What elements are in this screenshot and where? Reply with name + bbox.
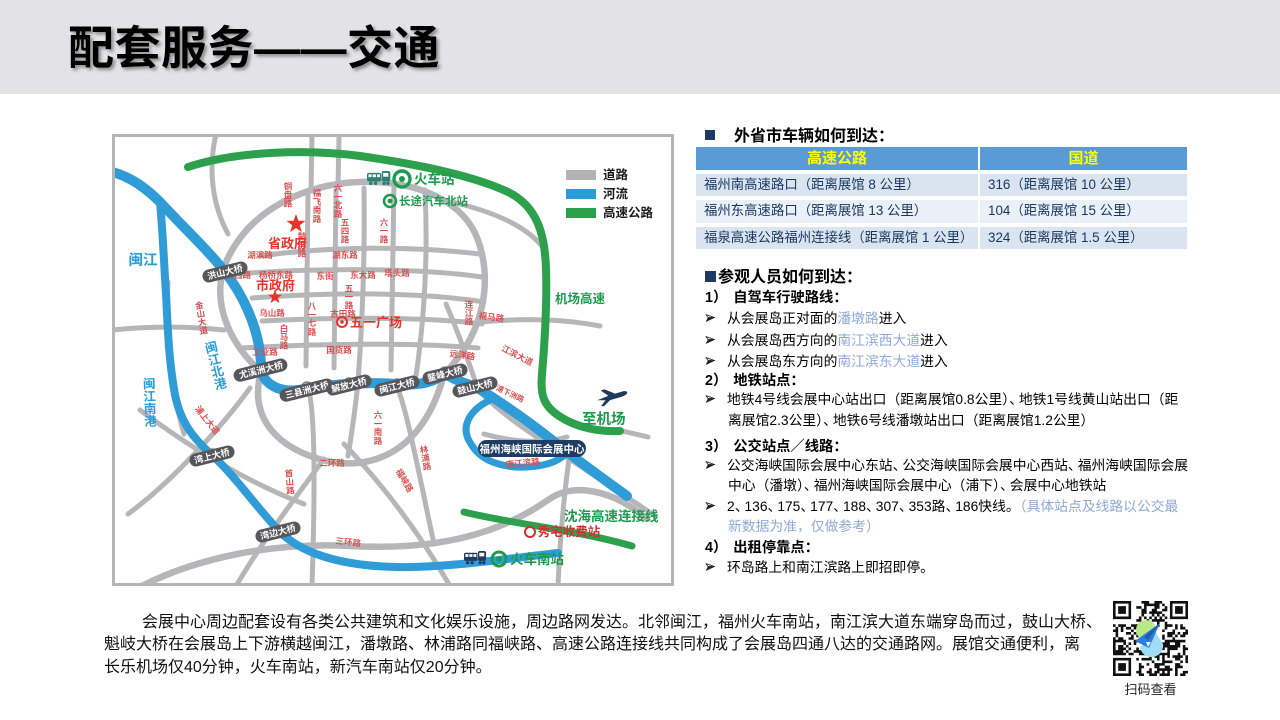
svg-text:白马路: 白马路 [280,324,289,351]
svg-text:五四路: 五四路 [341,218,350,245]
svg-text:机场高速: 机场高速 [555,291,606,306]
svg-text:浦上大道: 浦上大道 [193,404,222,437]
svg-text:福州海峡国际会展中心: 福州海峡国际会展中心 [480,443,585,456]
svg-text:福峡路: 福峡路 [394,467,416,495]
svg-text:高速公路: 高速公路 [603,205,654,220]
svg-text:火车南站: 火车南站 [510,551,564,567]
svg-text:连江路: 连江路 [465,300,474,327]
svg-text:工业路: 工业路 [252,347,278,357]
svg-text:二环路: 二环路 [319,458,345,468]
svg-text:闽江南港: 闽江南港 [143,376,158,429]
svg-text:湖东路: 湖东路 [332,250,358,260]
svg-text:秀宅收费站: 秀宅收费站 [538,524,601,539]
svg-text:闽江北港: 闽江北港 [203,338,228,392]
svg-text:国货路: 国货路 [326,345,352,355]
svg-text:首山路: 首山路 [284,468,295,496]
svg-text:五一广场: 五一广场 [350,315,402,330]
svg-text:沈海高速连接线: 沈海高速连接线 [564,508,659,524]
svg-text:至机场: 至机场 [582,411,626,428]
svg-text:六一南路: 六一南路 [374,410,383,446]
svg-text:八一七路: 八一七路 [308,301,317,337]
svg-text:火车站: 火车站 [414,171,455,187]
svg-text:铜盘路: 铜盘路 [284,182,293,209]
svg-text:金山大道: 金山大道 [194,300,209,337]
svg-text:林浦路: 林浦路 [419,444,433,472]
svg-text:东街: 东街 [316,271,334,281]
svg-text:福飞南路: 福飞南路 [313,188,322,224]
svg-text:塔头路: 塔头路 [384,268,410,278]
svg-text:闽江: 闽江 [129,252,158,269]
svg-text:六一路: 六一路 [380,218,389,245]
svg-text:市政府: 市政府 [256,278,295,293]
svg-text:河流: 河流 [603,186,629,201]
svg-text:江滨大道: 江滨大道 [500,343,535,368]
svg-text:乌山路: 乌山路 [259,308,285,318]
svg-text:长途汽车北站: 长途汽车北站 [399,194,468,208]
svg-text:五一路: 五一路 [345,284,354,311]
svg-text:湖滨路: 湖滨路 [247,250,273,260]
svg-text:道路: 道路 [603,167,629,182]
svg-text:东大路: 东大路 [350,270,376,280]
svg-text:六一北路: 六一北路 [334,183,343,219]
svg-text:省政府: 省政府 [268,236,307,251]
